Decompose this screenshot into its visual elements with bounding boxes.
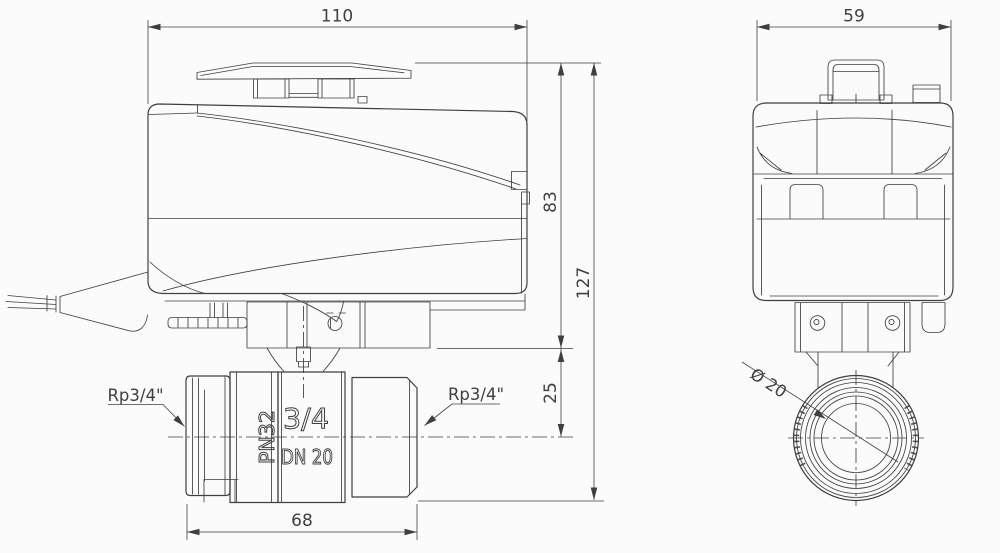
arrowhead [558, 336, 565, 349]
actuator-front-beak [283, 294, 344, 322]
bracket-screw [327, 313, 346, 331]
arrowhead [187, 529, 200, 536]
front-view: PN32 3/4 DN 20 [6, 63, 573, 503]
dim-width-front: 110 [321, 7, 353, 27]
cable-jacket [60, 272, 148, 331]
side-cap-corner-details [757, 147, 950, 174]
arrowhead [939, 24, 952, 31]
bracket-block [247, 302, 430, 348]
arrowhead [591, 63, 598, 76]
dimensions: 110 59 83 127 25 68 Rp3/4" Rp3/4" Ø 20 [107, 7, 951, 541]
cable-wires [6, 296, 56, 313]
arrowhead [558, 424, 565, 437]
arrowhead [515, 24, 528, 31]
arrowhead [591, 488, 598, 501]
arrowhead [148, 24, 161, 31]
handle-bar [197, 63, 411, 79]
valve-left-thread-lines [193, 377, 239, 502]
side-bracket-screw-left [810, 316, 825, 331]
label-bore-diameter: Ø 20 [747, 364, 790, 401]
side-button [913, 85, 940, 103]
side-bracket [795, 303, 945, 389]
handle-end-feet [820, 94, 892, 104]
valve-dimensional-drawing: PN32 3/4 DN 20 [0, 0, 1000, 553]
actuator-shell-outline [148, 104, 527, 294]
arrowhead [558, 63, 565, 76]
side-cap-bottom-lines [753, 174, 953, 179]
actuator-swoosh-lower [197, 116, 516, 189]
dim-actuator-height: 83 [541, 191, 561, 213]
side-bracket-screw-right [885, 316, 900, 331]
side-bracket-screw-left-center [814, 319, 819, 324]
mounting-bracket [165, 294, 525, 372]
marking-size: 3/4 [283, 402, 329, 435]
dim-width-side: 59 [843, 7, 865, 27]
side-body-tabs [757, 185, 950, 220]
actuator-body [148, 104, 530, 322]
valve-end-face [788, 370, 924, 506]
dim-bracket-to-axis: 25 [541, 382, 561, 404]
marking-dn: DN 20 [281, 445, 333, 469]
arrowhead [405, 529, 418, 536]
side-cap-arch [756, 118, 951, 127]
dim-valve-length: 68 [291, 511, 313, 531]
side-handle-end [820, 60, 892, 104]
side-view [753, 60, 953, 506]
handle-posts [254, 79, 355, 98]
actuator-lower-sweep [150, 239, 527, 294]
manual-handle [197, 63, 411, 103]
technical-drawing-canvas: PN32 3/4 DN 20 [0, 0, 1000, 553]
arrowhead [558, 350, 565, 363]
handle-small-lug [358, 97, 367, 104]
leader-lines [108, 362, 898, 462]
arrowhead [422, 415, 436, 428]
label-thread-left: Rp3/4" [107, 386, 163, 405]
side-bracket-block [795, 303, 910, 353]
side-bracket-screw-right-center [889, 319, 894, 324]
side-cap-panel-splits [817, 110, 892, 174]
side-bracket-tab [922, 303, 945, 333]
side-body-outline [753, 103, 953, 301]
actuator-lid-seam [149, 105, 198, 115]
handle-bar-inner-line [201, 67, 404, 76]
dim-overall-height: 127 [574, 267, 594, 299]
bracket-ribbed-strip [168, 303, 247, 328]
arrowhead [757, 24, 770, 31]
side-actuator-body [753, 103, 953, 301]
label-thread-right: Rp3/4" [448, 385, 504, 404]
connection-cable [6, 272, 148, 331]
